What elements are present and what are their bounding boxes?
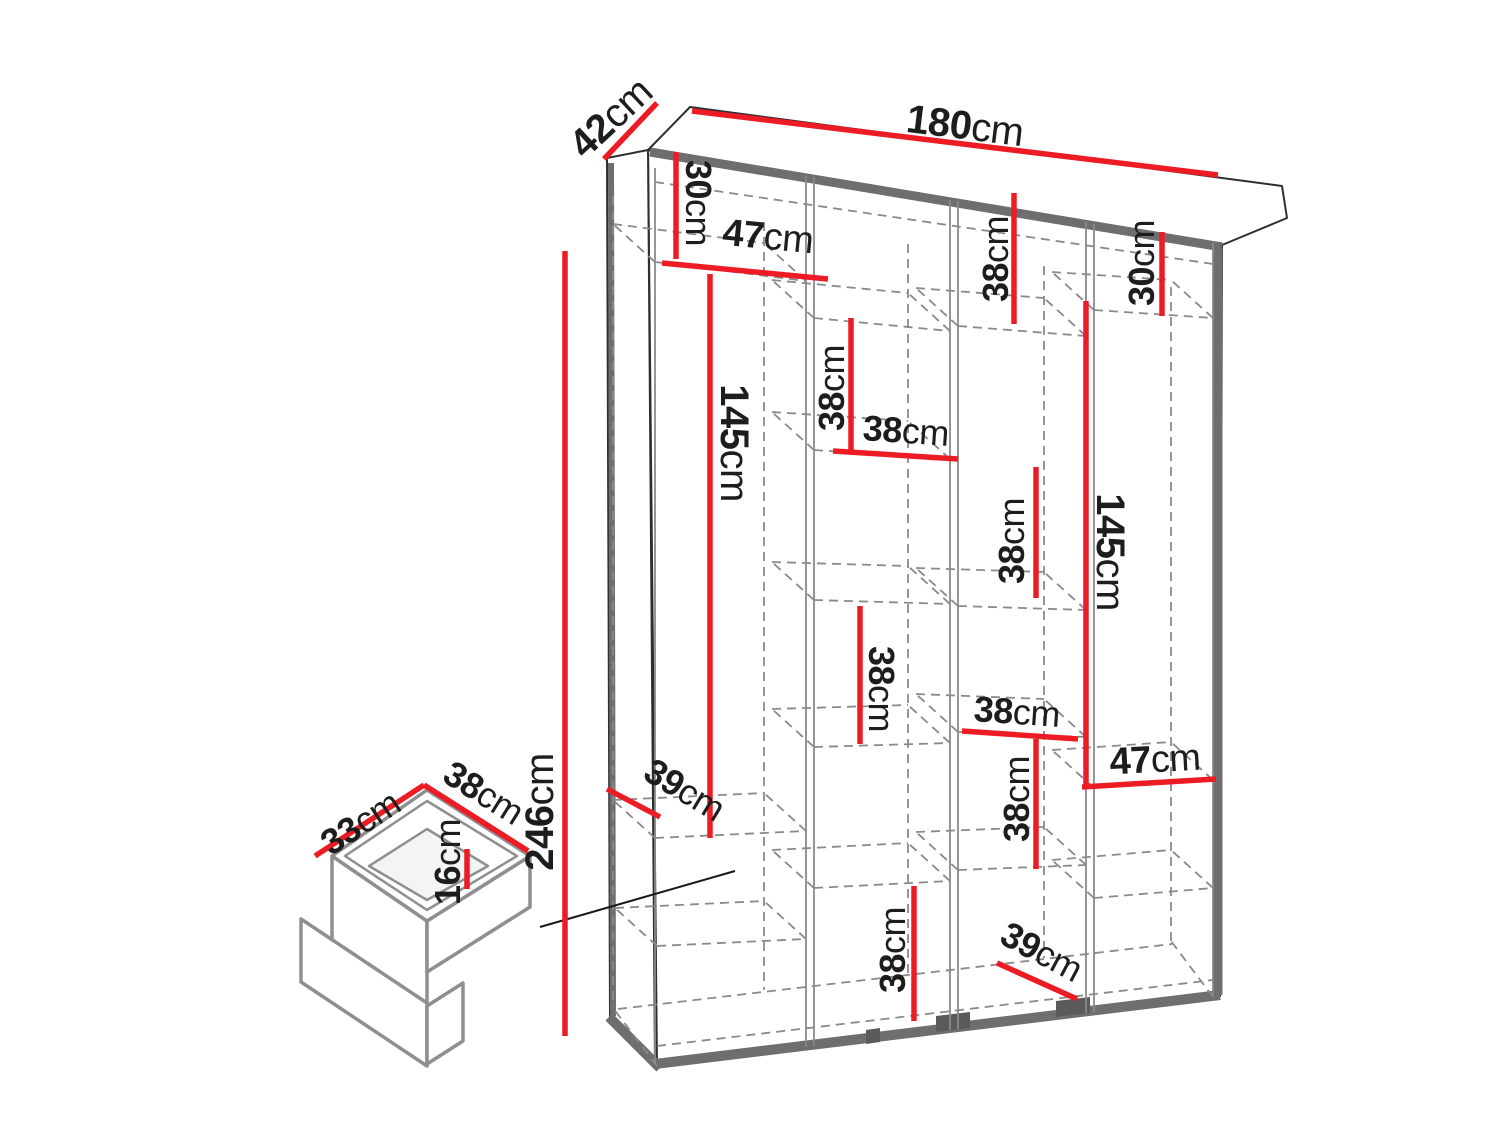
- label-col1-top-gap: 30cm: [679, 160, 720, 246]
- label-col4-hanging-height: 145cm: [1088, 493, 1132, 611]
- drawer-runner: [427, 983, 463, 1064]
- label-col3-lower-height: 38cm: [996, 756, 1037, 842]
- label-drawer-height: 16cm: [427, 819, 468, 905]
- label-col2-mid-height: 38cm: [862, 646, 903, 732]
- label-col3-shelf-width: 38cm: [973, 688, 1062, 735]
- label-col3-mid-height: 38cm: [991, 498, 1032, 584]
- wardrobe-diagram: 42cm 180cm 246cm 30cm 47cm 145cm 38cm 38…: [0, 0, 1500, 1125]
- label-col1-hanging-height: 145cm: [712, 384, 756, 502]
- label-col4-top-gap: 30cm: [1121, 220, 1162, 306]
- label-col2-shelf-width: 38cm: [862, 407, 951, 454]
- diagram-canvas: 42cm 180cm 246cm 30cm 47cm 145cm 38cm 38…: [0, 0, 1500, 1125]
- label-col2-bottom-height: 38cm: [872, 907, 913, 993]
- label-col1-shelf-width: 47cm: [721, 212, 816, 263]
- label-col3-top-height: 38cm: [975, 216, 1016, 302]
- label-height-total: 246cm: [518, 753, 562, 871]
- label-col4-shelf-width: 47cm: [1108, 737, 1201, 784]
- cabinet-foot: [866, 1028, 880, 1044]
- label-col2-top-height: 38cm: [811, 345, 852, 431]
